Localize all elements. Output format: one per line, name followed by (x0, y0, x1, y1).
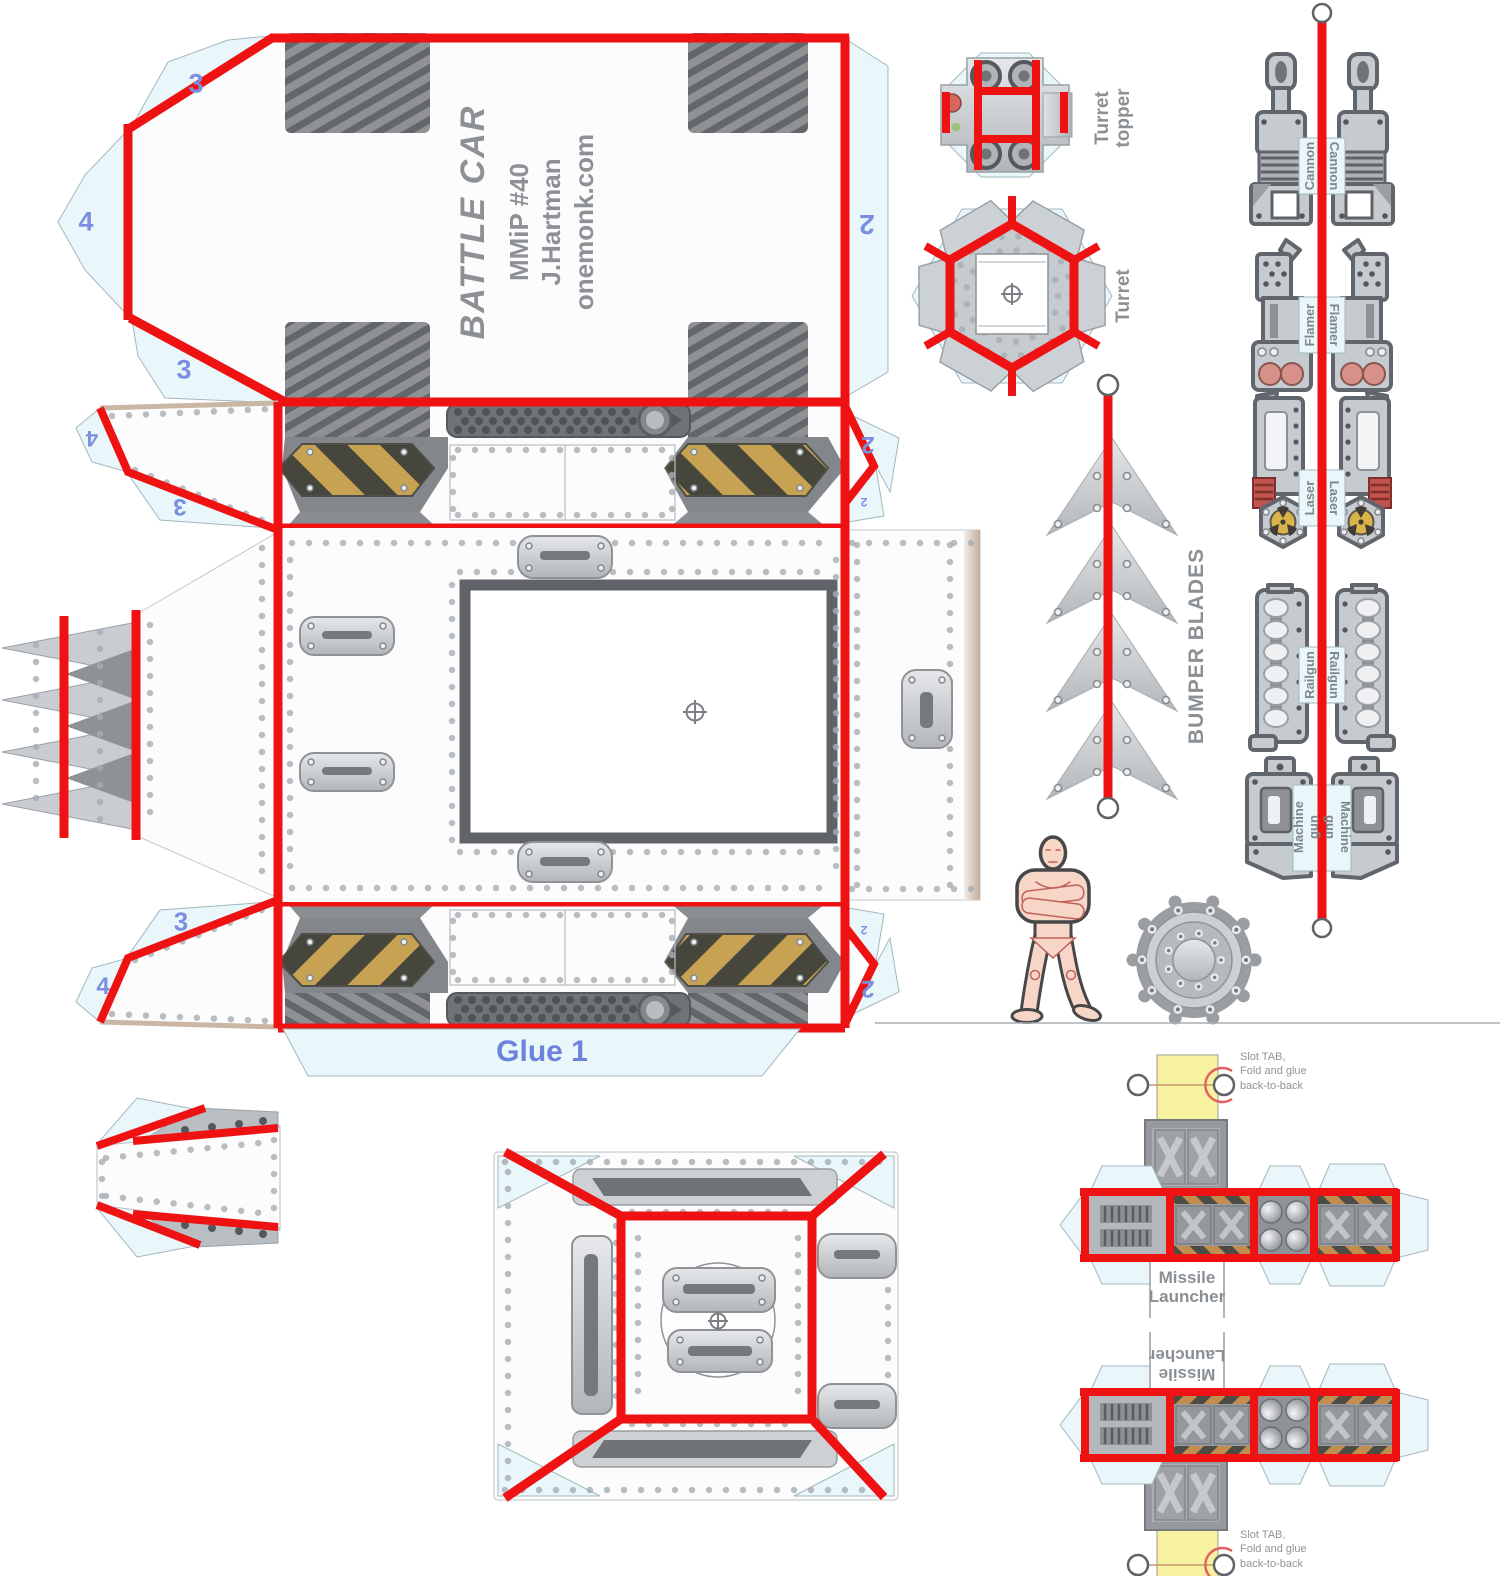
hazard-x-panel (1316, 1195, 1396, 1255)
hazard-x-panel (1172, 1195, 1252, 1255)
title-block: BATTLE CAR MMiP #40 J.Hartman onemonk.co… (437, 32, 617, 412)
laser (1253, 392, 1305, 547)
hatch-plate (518, 842, 612, 882)
tab-number: 3 (173, 492, 186, 520)
slot-tab (1157, 1055, 1218, 1120)
weapon-label-railgun: Railgun (1324, 645, 1344, 705)
slot-tab-note: Slot TAB, Fold and glue back-to-back (1240, 1050, 1370, 1093)
turret-topper (941, 53, 1072, 177)
lamp-green (952, 123, 961, 132)
weapon-label-laser: Laser (1300, 468, 1320, 528)
missile-launcher-label: Missile Launcher (1142, 1343, 1232, 1387)
missile-tube-panel (1256, 1195, 1312, 1255)
railgun (1250, 585, 1307, 750)
tab-number: 3 (188, 69, 203, 100)
sheet-graphics: .fold{stroke:#ee1212;stroke-width:9;fill… (0, 0, 1504, 1576)
sheet-author: J.Hartman (535, 158, 568, 285)
tab-number: 4 (78, 207, 93, 238)
slot-tab-note: Slot TAB, Fold and glue back-to-back (1240, 1528, 1370, 1571)
nose-piece (97, 1098, 280, 1257)
hatch-plate (300, 617, 394, 655)
papercraft-sheet: .fold{stroke:#ee1212;stroke-width:9;fill… (0, 0, 1504, 1576)
tab-number: 4 (96, 973, 109, 1001)
tab-number: 2 (861, 974, 874, 1002)
glue-label: Glue 1 (496, 1035, 588, 1069)
sheet-model-number: MMiP #40 (503, 163, 536, 281)
rear-panel (494, 1152, 898, 1500)
weapon-label-railgun: Railgun (1300, 645, 1320, 705)
turret-label: Turret (1111, 256, 1137, 336)
missile-launcher-label: Missile Launcher (1142, 1265, 1232, 1309)
tab-number: 2 (861, 495, 868, 509)
weapon-label-machine-gun: Machine gun (1317, 795, 1357, 859)
side-strip (76, 402, 899, 530)
tab-number: 3 (176, 355, 191, 386)
bumper-blades-label: BUMPER BLADES (1182, 536, 1212, 756)
turret-topper-label: Turret topper (1083, 83, 1143, 153)
tab-number: 2 (859, 208, 875, 240)
hatch-plate (300, 753, 394, 791)
hatch-plate (518, 536, 612, 578)
tab-number: 2 (861, 923, 868, 937)
body-panel (2, 528, 980, 902)
weapon-label-laser: Laser (1324, 468, 1344, 528)
turret (894, 186, 1131, 406)
weapon-label-flamer: Flamer (1300, 295, 1320, 355)
tab-number: 3 (174, 907, 188, 938)
weapon-label-flamer: Flamer (1324, 295, 1344, 355)
tab-number: 2 (861, 430, 874, 458)
sheet-title: BATTLE CAR (454, 105, 493, 340)
body-right-section (845, 530, 980, 900)
sheet-website: onemonk.com (568, 134, 601, 310)
scale-figure (1012, 837, 1102, 1024)
wheel (1133, 899, 1255, 1021)
weapon-label-cannon: Cannon (1300, 136, 1320, 196)
front-spikes (2, 610, 137, 840)
weapon-label-cannon: Cannon (1324, 136, 1344, 196)
tab-number: 4 (86, 425, 98, 451)
missile-launcher-part (1060, 1055, 1428, 1318)
bumper-blades (1047, 375, 1177, 818)
